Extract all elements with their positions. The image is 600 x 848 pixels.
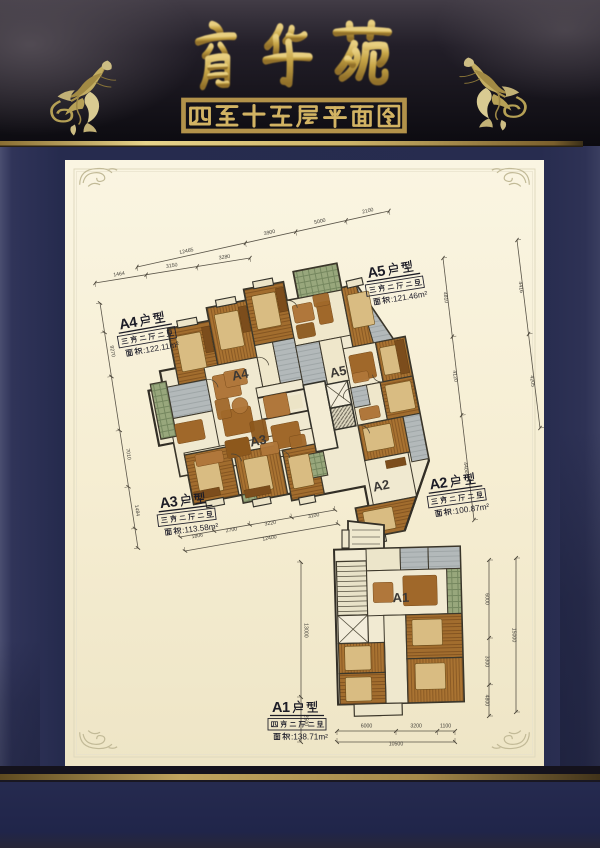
svg-text:A3: A3	[249, 432, 268, 450]
svg-text:1100: 1100	[440, 724, 451, 730]
svg-text:A2: A2	[372, 477, 391, 495]
svg-text:A1: A1	[392, 590, 409, 606]
svg-text:10500: 10500	[389, 741, 404, 747]
svg-text:15000: 15000	[511, 628, 517, 643]
svg-text:3300: 3300	[484, 656, 490, 668]
svg-text::138.71m²: :138.71m²	[291, 733, 328, 742]
svg-text:A5: A5	[329, 363, 348, 381]
svg-text:13000: 13000	[302, 623, 308, 638]
svg-text:A1: A1	[272, 700, 290, 716]
svg-text:3200: 3200	[410, 724, 422, 730]
svg-text:6000: 6000	[484, 593, 490, 605]
svg-text:6000: 6000	[361, 724, 373, 730]
svg-text:4800: 4800	[484, 695, 490, 707]
